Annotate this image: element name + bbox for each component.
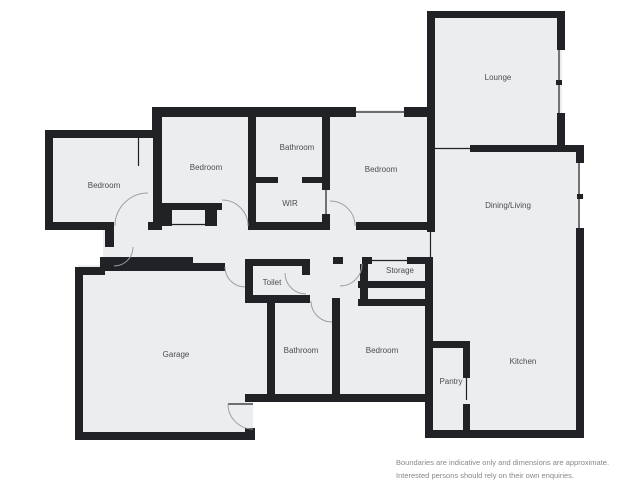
room-label-toilet: Toilet [263,278,282,287]
room-label-bathroom: Bathroom [280,143,315,152]
room-label-pantry: Pantry [439,377,462,386]
disclaimer: Boundaries are indicative only and dimen… [396,458,609,480]
room-label-garage: Garage [163,350,190,359]
disclaimer-line-1: Boundaries are indicative only and dimen… [396,458,609,467]
floorplan-svg: BedroomBedroomBathroomWIRBedroomLoungeDi… [0,0,640,489]
room-label-bedroom: Bedroom [365,165,398,174]
floor-pantry [428,345,468,432]
room-label-bedroom: Bedroom [190,163,223,172]
disclaimer-line-2: Interested persons should rely on their … [396,471,574,480]
room-label-lounge: Lounge [485,73,512,82]
room-label-bedroom: Bedroom [88,181,121,190]
room-label-wir: WIR [282,199,298,208]
floor-left-bedroom [48,133,158,227]
room-label-bedroom: Bedroom [366,346,399,355]
room-label-kitchen: Kitchen [510,357,537,366]
floorplan-page: BedroomBedroomBathroomWIRBedroomLoungeDi… [0,0,640,489]
room-label-storage: Storage [386,266,415,275]
room-label-bathroom: Bathroom [284,346,319,355]
room-label-dining-living: Dining/Living [485,201,531,210]
